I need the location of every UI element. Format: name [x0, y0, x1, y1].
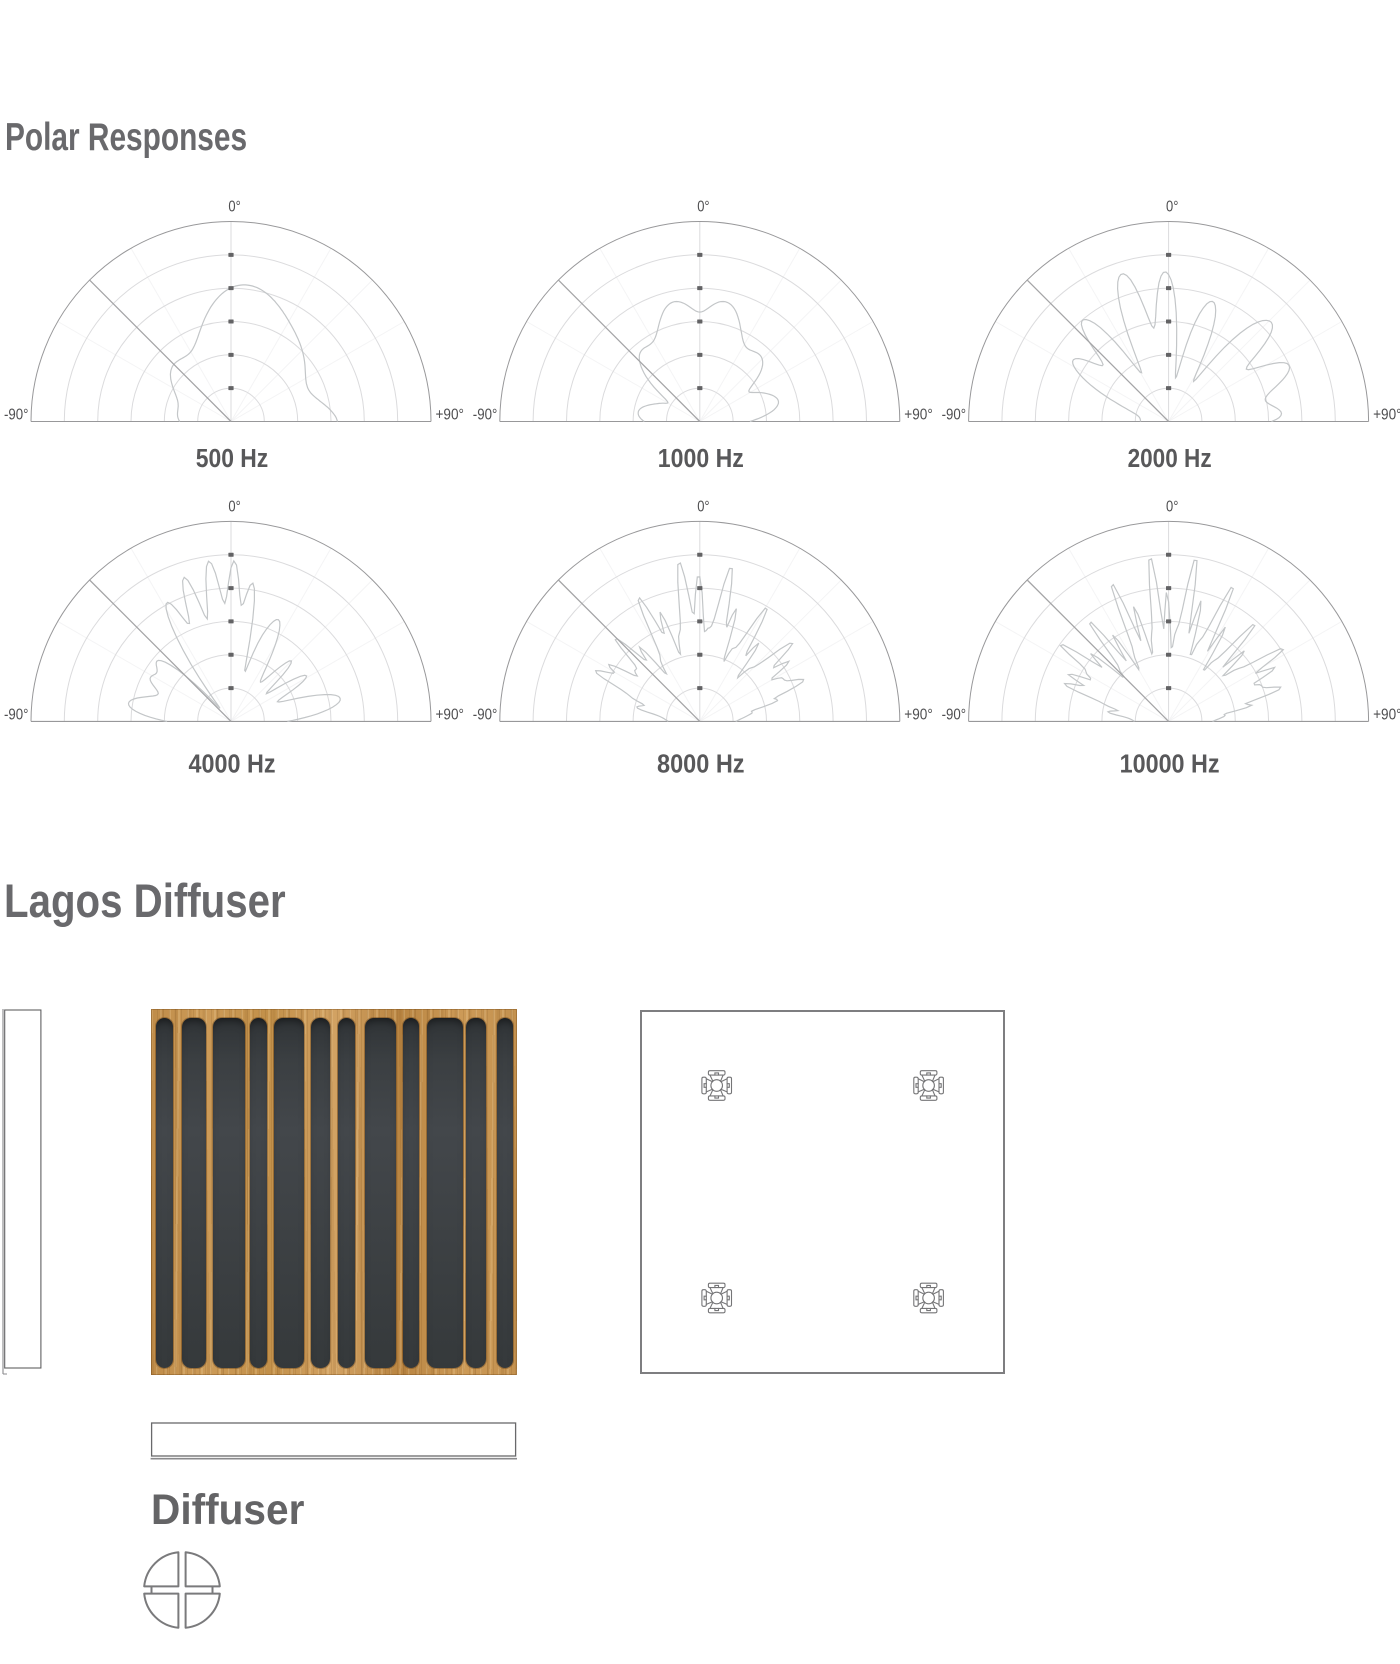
svg-text:1000 Hz: 1000 Hz — [658, 445, 744, 473]
svg-text:+90°: +90° — [1373, 407, 1400, 424]
svg-text:+90°: +90° — [1373, 706, 1400, 723]
svg-text:0°: 0° — [1166, 499, 1178, 516]
svg-text:0°: 0° — [697, 499, 709, 516]
svg-text:500 Hz: 500 Hz — [196, 445, 269, 473]
svg-text:8000 Hz: 8000 Hz — [657, 751, 745, 779]
svg-text:2000 Hz: 2000 Hz — [1128, 445, 1212, 473]
svg-text:+90°: +90° — [436, 407, 465, 424]
svg-text:4000 Hz: 4000 Hz — [189, 751, 276, 779]
svg-text:-90°: -90° — [473, 706, 498, 723]
svg-text:-90°: -90° — [942, 407, 967, 424]
svg-text:+90°: +90° — [904, 407, 933, 424]
svg-text:-90°: -90° — [942, 706, 967, 723]
svg-text:+90°: +90° — [436, 706, 465, 723]
svg-text:-90°: -90° — [4, 706, 29, 723]
svg-text:0°: 0° — [228, 199, 240, 216]
svg-text:0°: 0° — [228, 499, 240, 516]
svg-text:+90°: +90° — [904, 706, 933, 723]
svg-text:-90°: -90° — [473, 407, 498, 424]
svg-text:10000 Hz: 10000 Hz — [1120, 751, 1220, 779]
svg-text:-90°: -90° — [4, 407, 29, 424]
svg-text:0°: 0° — [1166, 199, 1178, 216]
svg-text:0°: 0° — [697, 199, 709, 216]
